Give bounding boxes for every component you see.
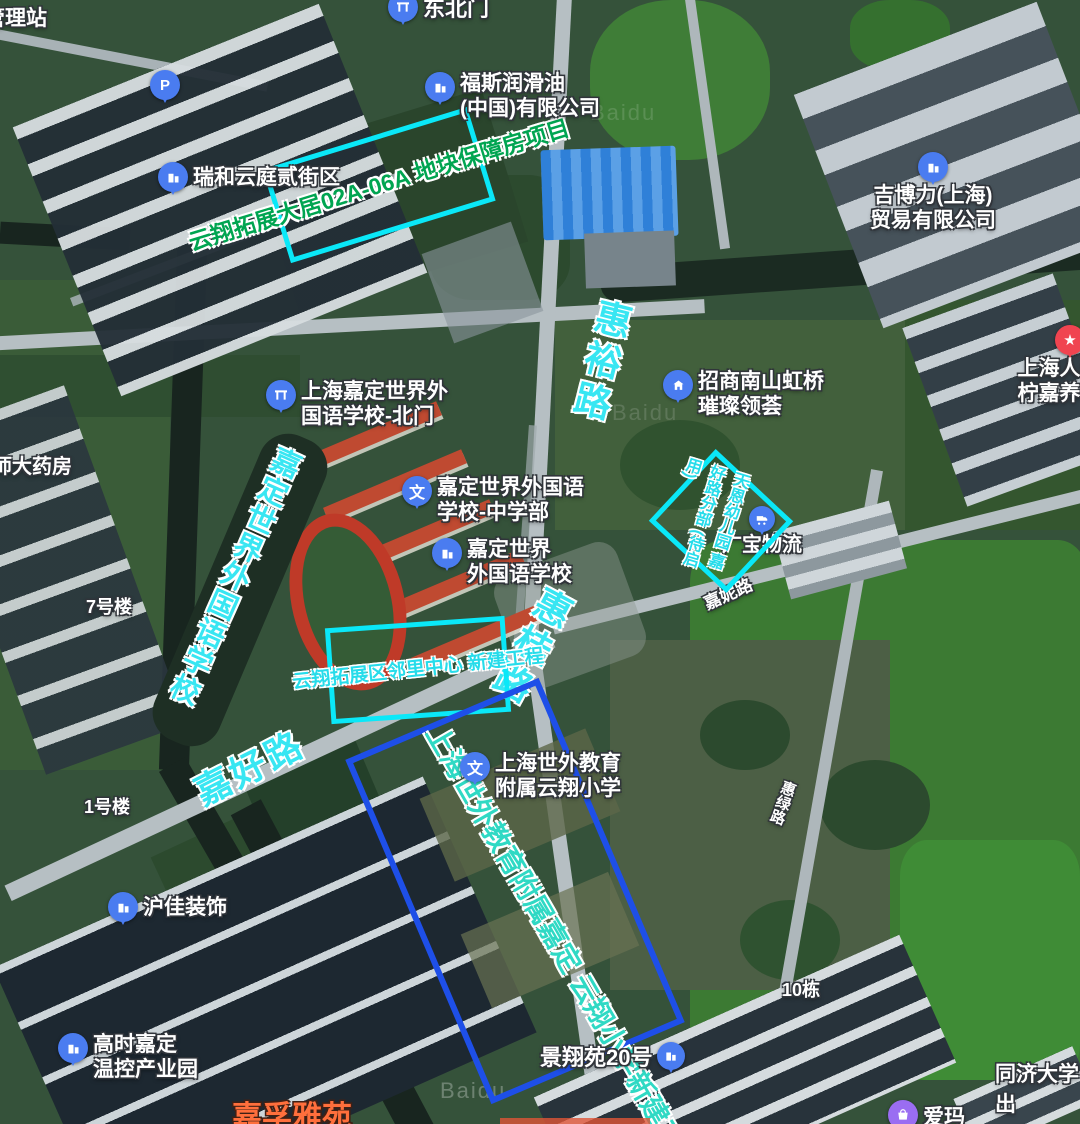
building-icon (158, 162, 188, 192)
poi-jingxiang[interactable]: 景翔苑20号 (540, 1042, 685, 1071)
poi-middle-school[interactable]: 文 嘉定世界外国语 学校-中学部 (402, 476, 584, 526)
poi-yunxiang-primary[interactable]: 文 上海世外教育 附属云翔小学 (460, 752, 621, 802)
parking-icon: P (150, 70, 180, 100)
building-icon (432, 538, 462, 568)
school-icon: 文 (460, 752, 490, 782)
building-icon (108, 892, 138, 922)
poi-dongbeimen[interactable]: 东北门 (388, 0, 489, 22)
area-label-tongji: 同济大学出 (995, 1058, 1080, 1118)
building-icon (58, 1033, 88, 1063)
poi-label: 嘉定世界 外国语学校 (467, 538, 572, 588)
poi-label: 高时嘉定 温控产业园 (93, 1033, 198, 1083)
poi-ruihe[interactable]: 瑞和云庭贰街区 (158, 162, 340, 192)
vegetation-patch (590, 0, 770, 160)
poi-label: 嘉定世界外国语 学校-中学部 (437, 476, 584, 526)
school-icon: 文 (402, 476, 432, 506)
poi-aima[interactable]: 爱玛 (888, 1100, 965, 1124)
poi-label: 爱玛 (923, 1106, 965, 1124)
poi-label: 上海人寿堂 柠嘉养老院 (1018, 357, 1080, 407)
gate-icon (266, 380, 296, 410)
poi-school-north-gate[interactable]: 上海嘉定世界外 国语学校-北门 (266, 380, 448, 430)
poi-label: 沪佳装饰 (143, 896, 227, 921)
poi-label: 东北门 (423, 0, 489, 22)
poi-renshou[interactable]: ★ 上海人寿堂 柠嘉养老院 (1010, 325, 1080, 407)
poi-fushi[interactable]: 福斯润滑油 (中国)有限公司 (425, 72, 600, 122)
building-icon (918, 152, 948, 182)
neighborhood-center-label: 云翔拓展区邻里中心 新建工程 (291, 645, 545, 696)
building-icon (425, 72, 455, 102)
area-label-building10: 10栋 (782, 976, 820, 1002)
poi-label: 吉博力(上海) 贸易有限公司 (870, 184, 996, 234)
star-icon: ★ (1055, 325, 1080, 355)
poi-label: 福斯润滑油 (中国)有限公司 (460, 72, 600, 122)
poi-label: 上海嘉定世界外 国语学校-北门 (301, 380, 448, 430)
area-label-building7: 7号楼 (86, 593, 132, 619)
poi-gaoshi[interactable]: 高时嘉定 温控产业园 (58, 1033, 198, 1083)
tree-blob (820, 760, 930, 850)
poi-zhaoshang[interactable]: 招商南山虹桥 璀璨领荟 (663, 370, 824, 420)
area-label-building1: 1号楼 (84, 793, 130, 819)
poi-parking[interactable]: P (150, 70, 180, 100)
house-icon (663, 370, 693, 400)
gate-icon (388, 0, 418, 22)
blue-roof-factory (540, 146, 678, 241)
poi-jiboli[interactable]: 吉博力(上海) 贸易有限公司 (870, 152, 996, 234)
poi-hujia[interactable]: 沪佳装饰 (108, 892, 227, 922)
area-label-shidayaofang: 师大药房 (0, 450, 72, 479)
shop-bag-icon (888, 1100, 918, 1124)
area-label-jiafuyayuan: 嘉孚雅苑 (232, 1092, 352, 1124)
area-label-guanlizhan: 管理站 (0, 2, 47, 32)
poi-label: 景翔苑20号 (540, 1045, 652, 1071)
poi-label: 上海世外教育 附属云翔小学 (495, 752, 621, 802)
poi-label: 瑞和云庭贰街区 (193, 166, 340, 191)
tree-blob (700, 700, 790, 770)
building-icon (657, 1042, 685, 1070)
building (584, 230, 676, 288)
satellite-map[interactable]: Baidu Baidu Baidu 云翔拓展大居02A-06A 地块保障房项目 … (0, 0, 1080, 1124)
clipped-label (500, 1118, 650, 1124)
poi-foreign-language-school[interactable]: 嘉定世界 外国语学校 (432, 538, 572, 588)
poi-label: 招商南山虹桥 璀璨领荟 (698, 370, 824, 420)
